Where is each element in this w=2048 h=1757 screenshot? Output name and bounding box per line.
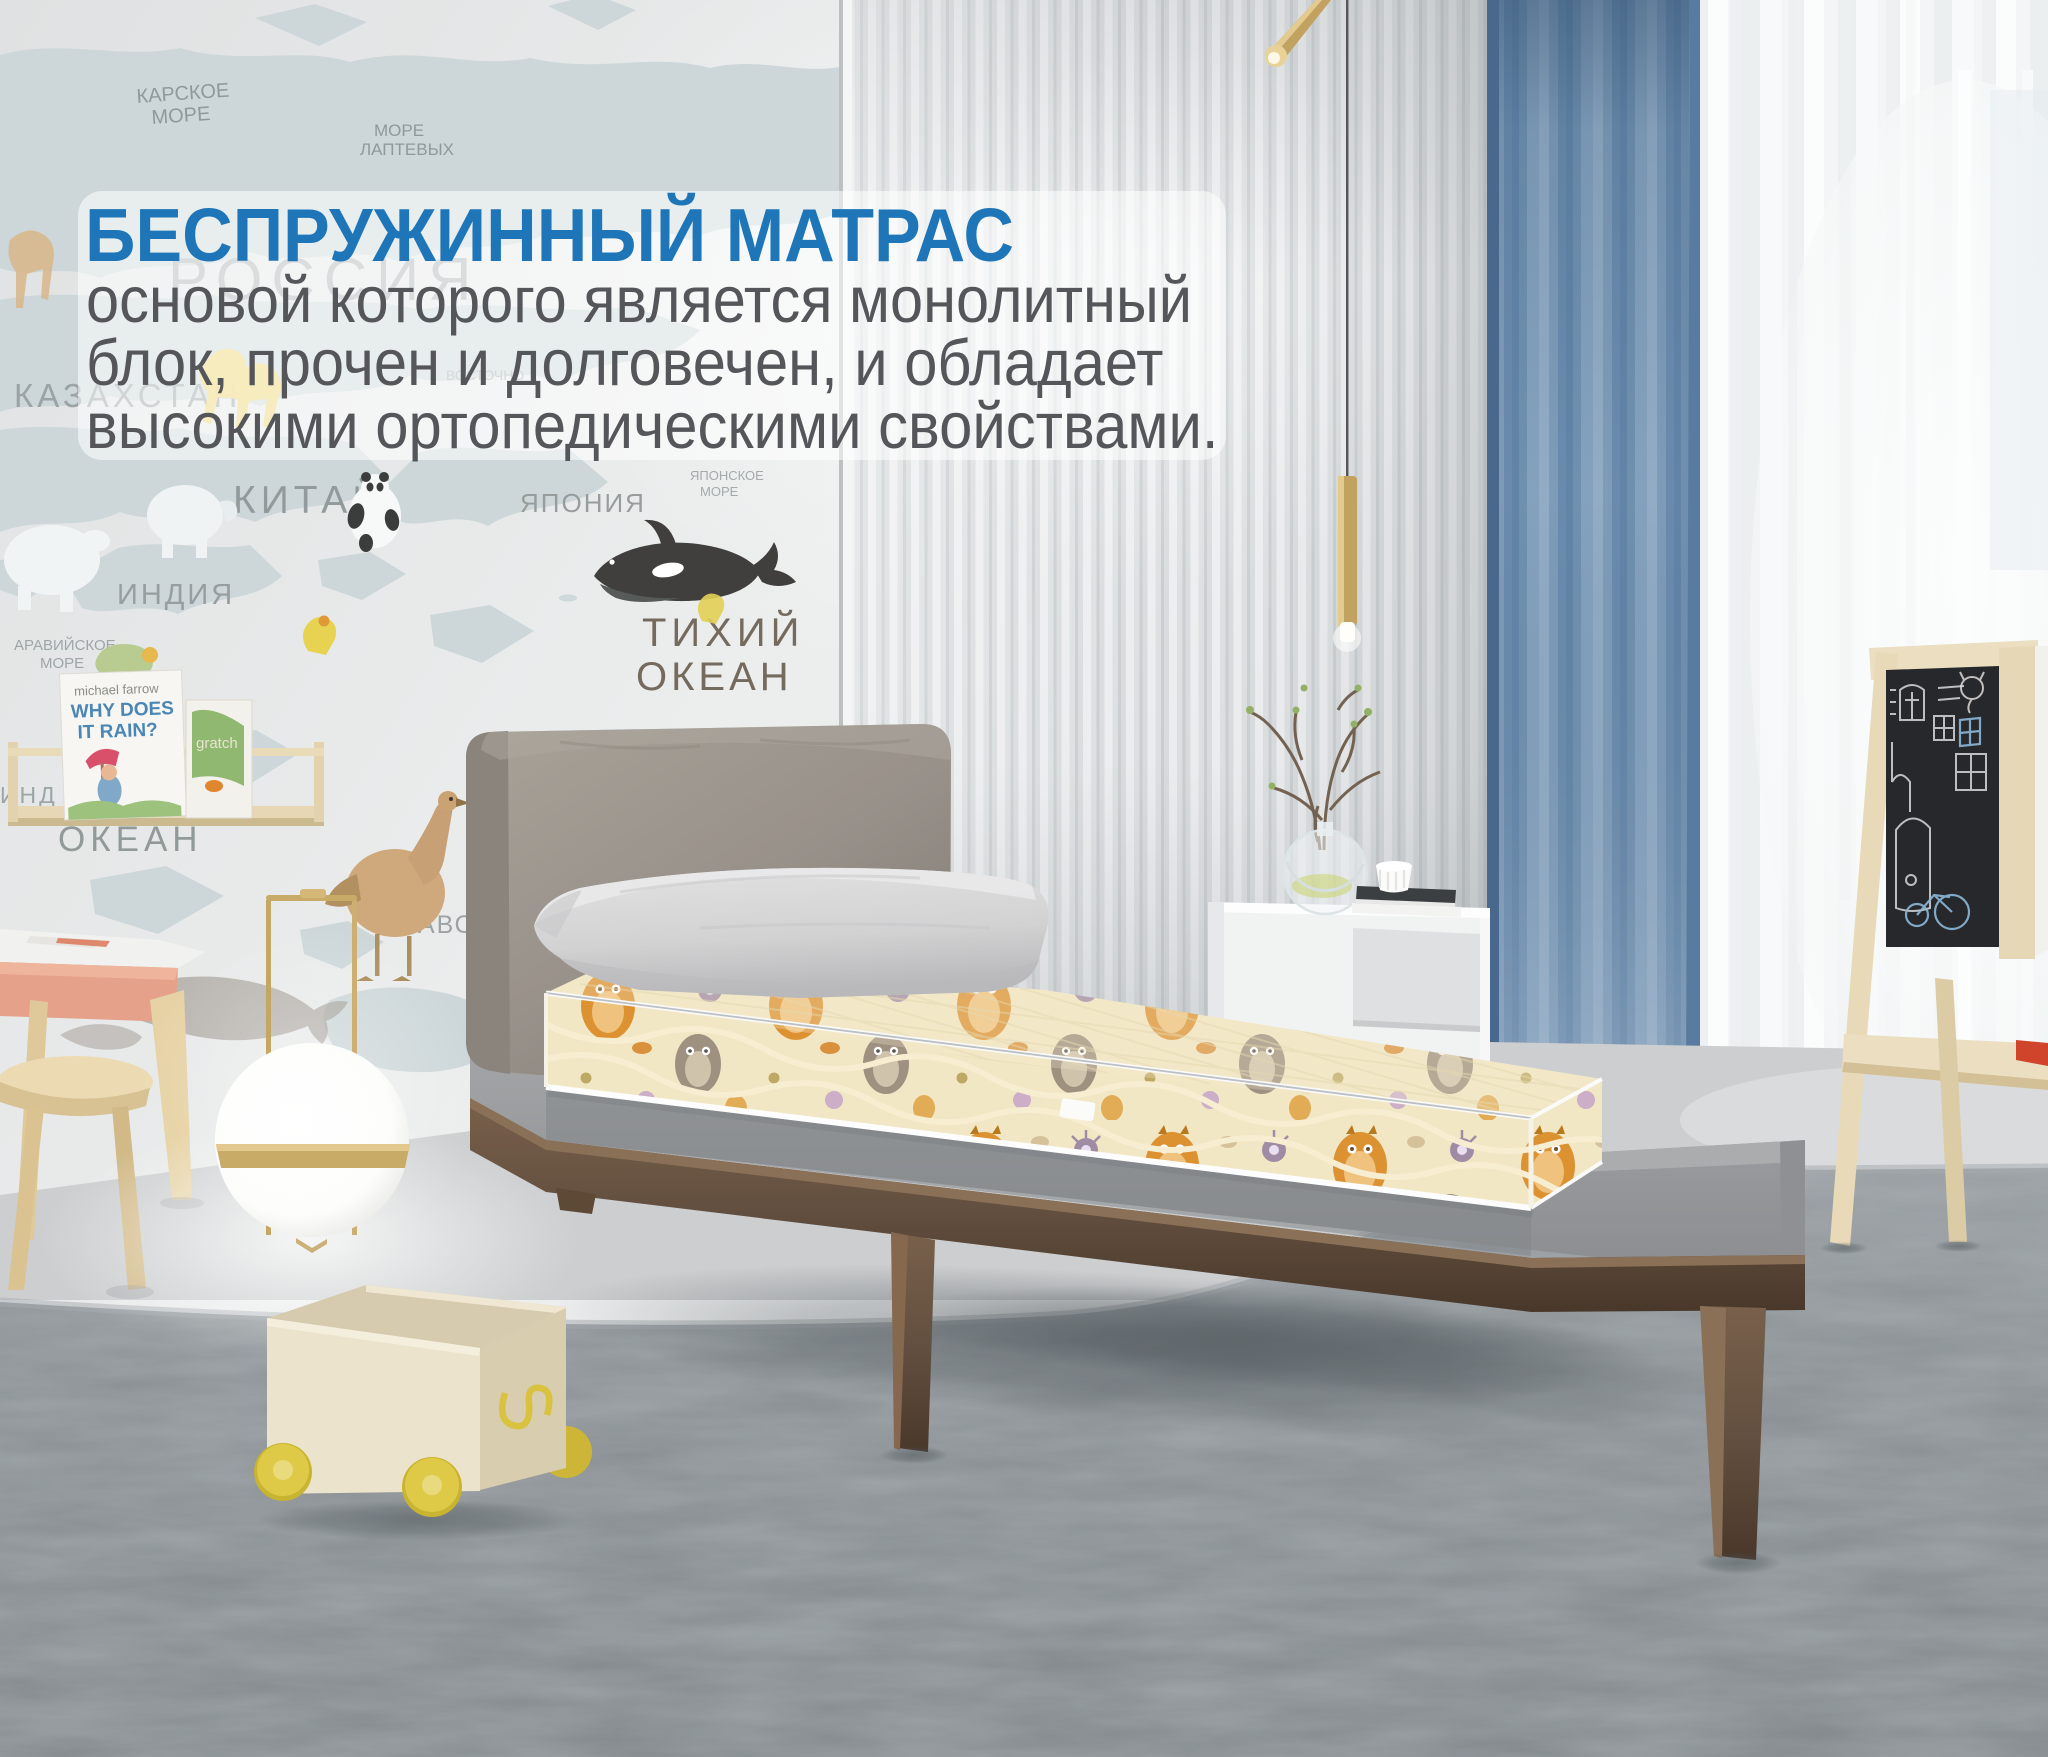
svg-text:ТИХИЙ: ТИХИЙ [642, 609, 804, 655]
svg-text:WHY DOES: WHY DOES [70, 698, 174, 723]
svg-text:gratch: gratch [196, 735, 238, 752]
svg-text:ЯПОНИЯ: ЯПОНИЯ [520, 488, 646, 518]
svg-text:МОРЕ: МОРЕ [151, 103, 211, 129]
svg-text:ЛАПТЕВЫХ: ЛАПТЕВЫХ [360, 140, 454, 159]
svg-text:МОРЕ: МОРЕ [374, 121, 424, 140]
svg-text:АРАВИЙСКОЕ: АРАВИЙСКОЕ [14, 636, 116, 654]
svg-text:ОКЕАН: ОКЕАН [636, 655, 793, 699]
svg-text:МОРЕ: МОРЕ [700, 484, 739, 499]
svg-text:МОРЕ: МОРЕ [40, 655, 84, 672]
svg-text:michael farrow: michael farrow [74, 681, 160, 699]
svg-text:ЯПОНСКОЕ: ЯПОНСКОЕ [690, 468, 764, 483]
svg-text:IT RAIN?: IT RAIN? [77, 720, 158, 744]
svg-text:ИНДИЯ: ИНДИЯ [117, 579, 235, 611]
